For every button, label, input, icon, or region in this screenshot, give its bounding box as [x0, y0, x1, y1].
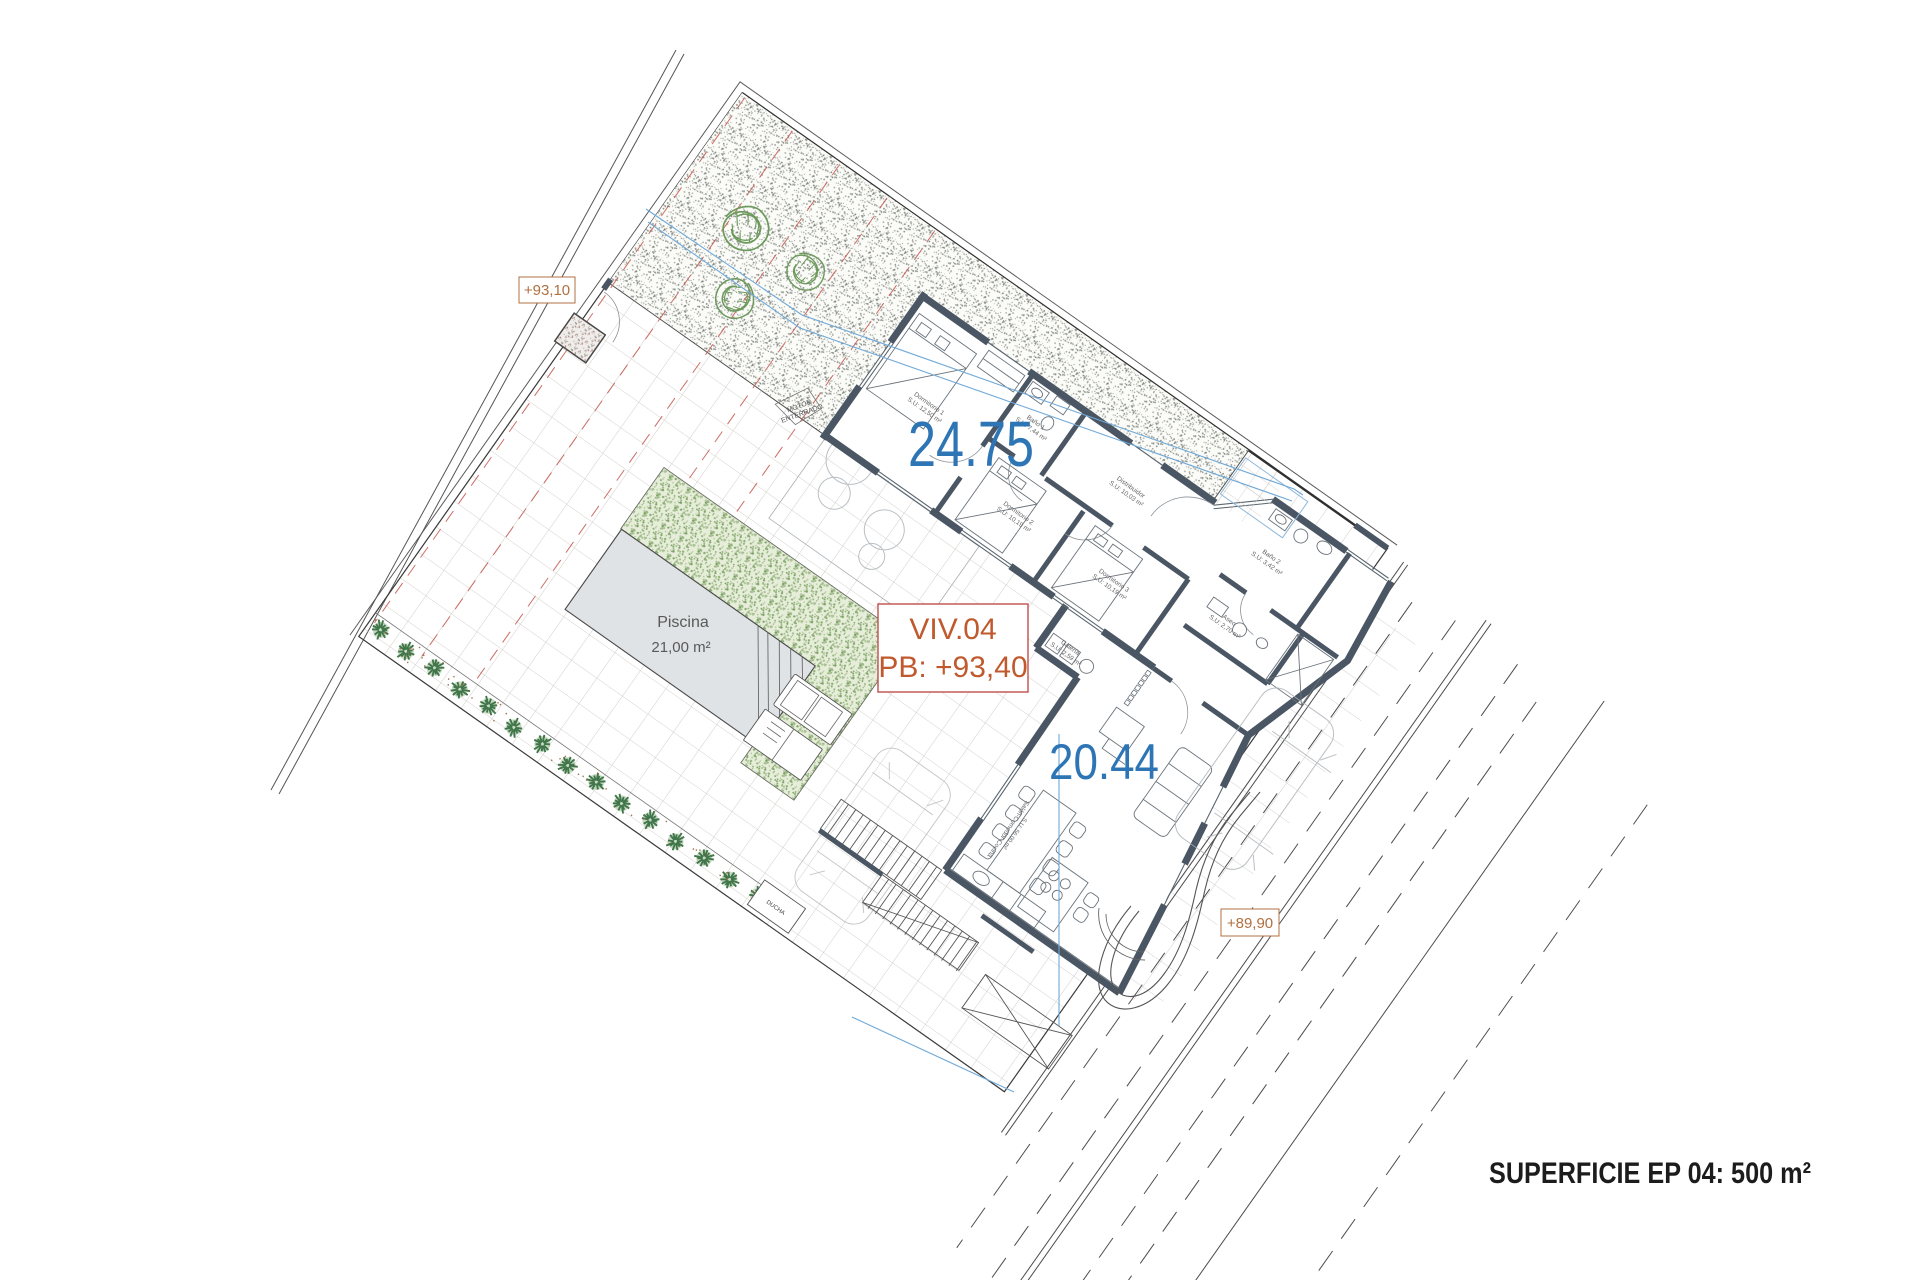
- svg-text:SUPERFICIE EP 04: 500 m²: SUPERFICIE EP 04: 500 m²: [1489, 1157, 1811, 1190]
- svg-text:24.75: 24.75: [908, 408, 1034, 480]
- svg-text:+93,10: +93,10: [524, 282, 570, 299]
- svg-text:VIV.04: VIV.04: [909, 613, 996, 646]
- svg-text:Piscina: Piscina: [657, 614, 709, 631]
- svg-text:21,00 m²: 21,00 m²: [651, 639, 710, 656]
- svg-text:20.44: 20.44: [1049, 734, 1159, 790]
- svg-text:PB: +93,40: PB: +93,40: [878, 651, 1027, 684]
- svg-text:+89,90: +89,90: [1227, 915, 1273, 932]
